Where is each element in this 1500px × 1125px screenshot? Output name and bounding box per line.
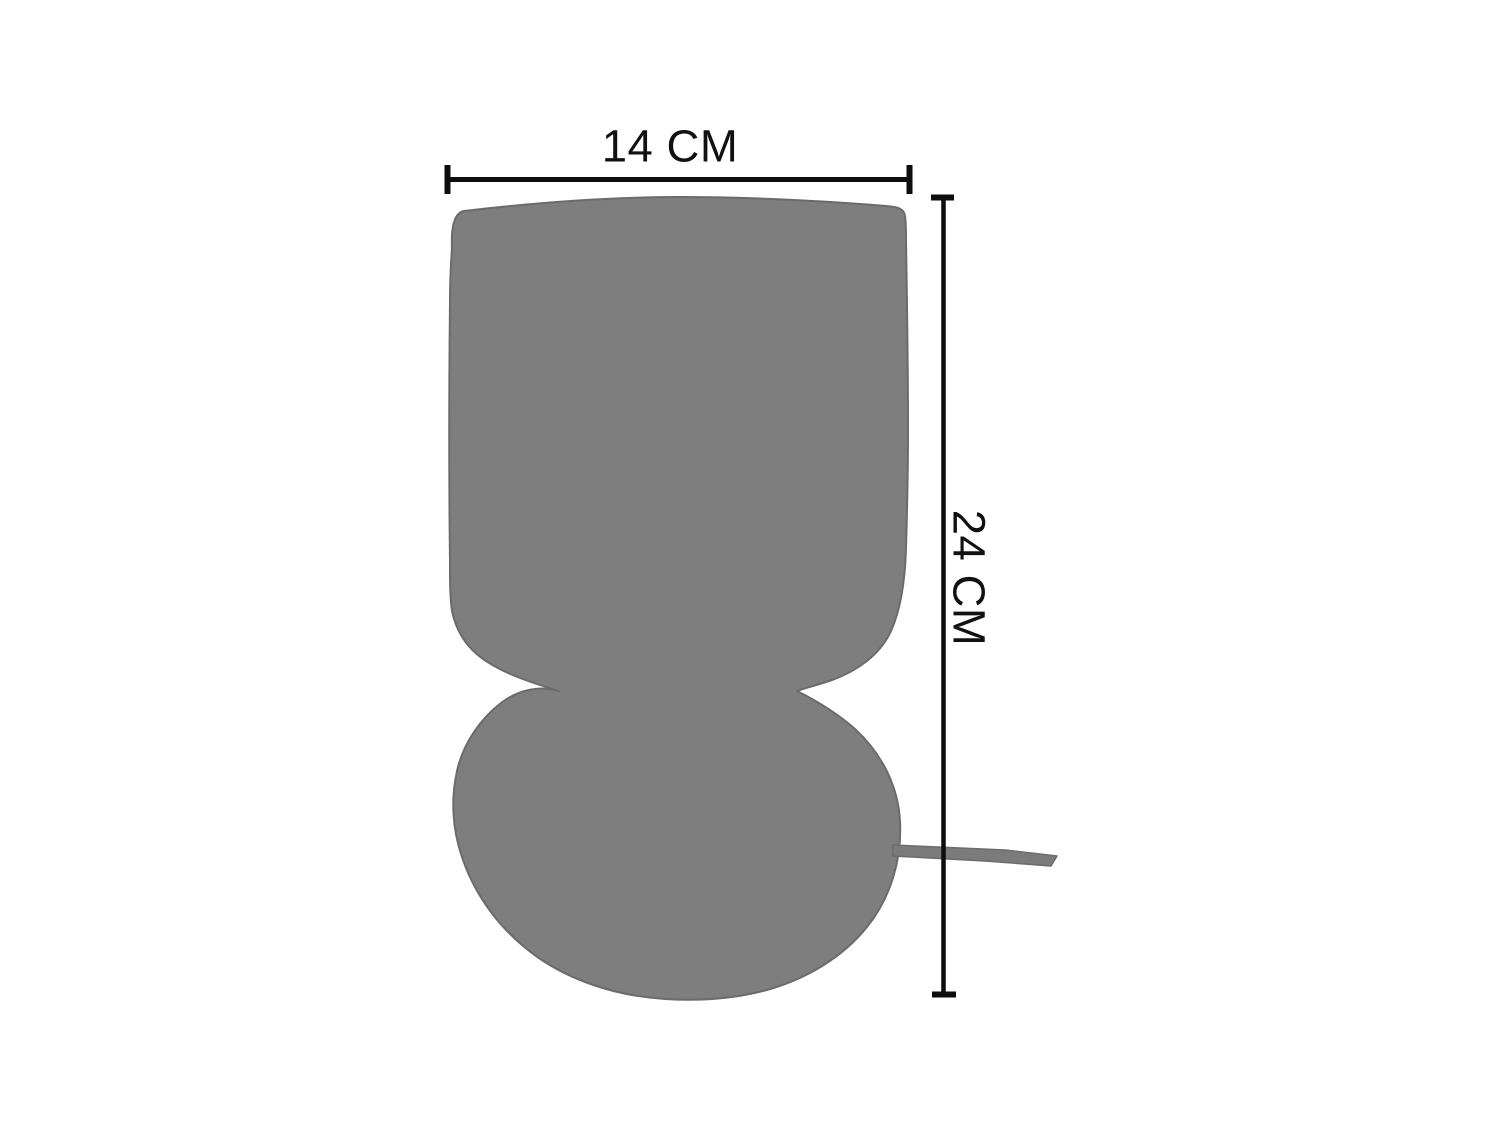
width-dimension-label: 14 CM [602, 121, 739, 172]
power-cord [893, 845, 1057, 866]
height-dimension-label: 24 CM [944, 510, 995, 647]
dimension-diagram-canvas: 14 CM 24 CM [0, 0, 1500, 1125]
lamp-silhouette [449, 197, 908, 1000]
lamp-dimension-diagram: 14 CM 24 CM [0, 0, 1500, 1125]
